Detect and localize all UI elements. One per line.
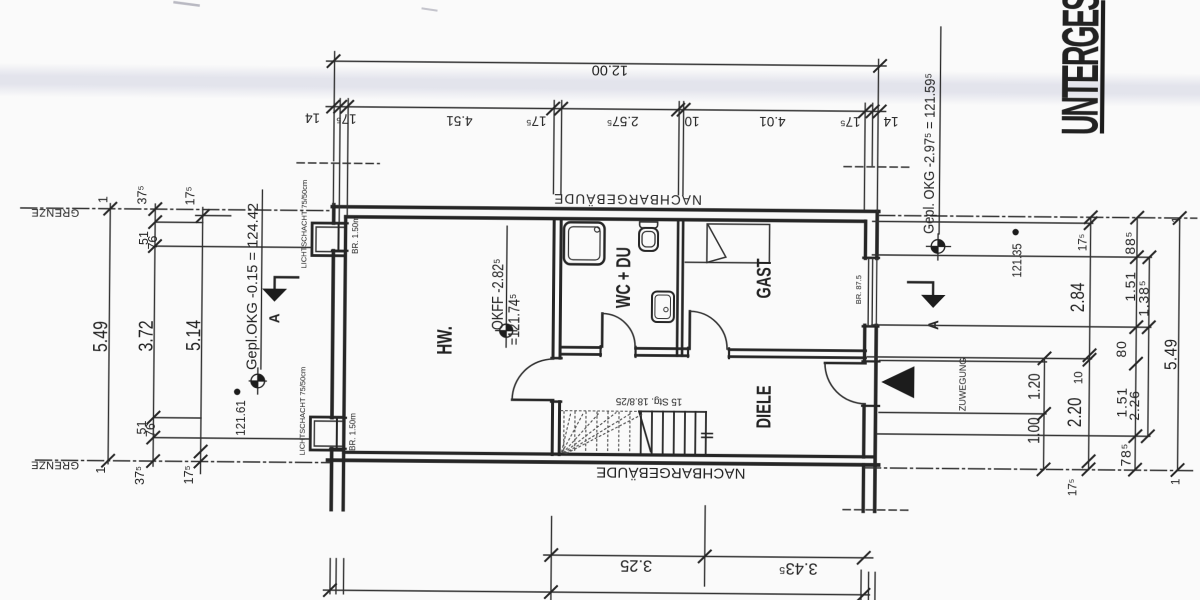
svg-text:1.00: 1.00 (1025, 417, 1044, 444)
svg-text:76: 76 (144, 423, 158, 437)
svg-text:A: A (267, 313, 284, 323)
svg-text:1: 1 (1170, 479, 1182, 486)
svg-text:HW.: HW. (432, 326, 456, 355)
svg-text:BR. 1.50m: BR. 1.50m (351, 216, 360, 254)
svg-text:NACHBARGEBÄUDE: NACHBARGEBÄUDE (596, 463, 746, 481)
svg-text:1.38⁵: 1.38⁵ (1135, 280, 1151, 317)
svg-text:17⁵: 17⁵ (336, 111, 357, 126)
svg-text:GAST: GAST (752, 258, 775, 298)
svg-text:Gepl.OKG -0.15 = 124.42: Gepl.OKG -0.15 = 124.42 (244, 203, 262, 370)
svg-text:2.20: 2.20 (1063, 397, 1085, 427)
svg-text:5.49: 5.49 (1160, 338, 1181, 370)
svg-text:1: 1 (96, 196, 110, 203)
svg-text:WC + DU: WC + DU (612, 247, 635, 308)
svg-text:2.57⁵: 2.57⁵ (607, 114, 639, 129)
svg-text:3.72: 3.72 (135, 320, 157, 351)
svg-text:14: 14 (883, 114, 899, 129)
svg-text:17⁵: 17⁵ (182, 465, 196, 484)
svg-text:78⁵: 78⁵ (1118, 443, 1134, 467)
svg-text:2.26: 2.26 (1126, 390, 1142, 421)
svg-text:4.01: 4.01 (759, 114, 785, 129)
svg-text:15 Stg. 18.8/25: 15 Stg. 18.8/25 (615, 395, 682, 407)
svg-text:1: 1 (94, 467, 108, 474)
svg-text:LICHTSCHACHT 75/50cm: LICHTSCHACHT 75/50cm (299, 180, 309, 269)
svg-text:121.35: 121.35 (1009, 243, 1024, 278)
svg-text:DIELE: DIELE (752, 385, 775, 428)
svg-text:NACHBARGEBÄUDE: NACHBARGEBÄUDE (553, 191, 702, 207)
svg-text:4.51: 4.51 (446, 113, 472, 128)
svg-text:37⁵: 37⁵ (135, 185, 149, 204)
svg-text:GRENZE: GRENZE (31, 206, 79, 218)
svg-text:10: 10 (1073, 371, 1085, 384)
svg-text:5.49: 5.49 (89, 321, 111, 352)
svg-text:=121.74⁵: =121.74⁵ (506, 294, 524, 346)
svg-text:17⁵: 17⁵ (1077, 233, 1089, 251)
svg-text:121.61: 121.61 (233, 400, 248, 436)
svg-text:BR. 87.5: BR. 87.5 (854, 275, 863, 304)
svg-text:OKFF -2.82⁵: OKFF -2.82⁵ (490, 258, 508, 330)
svg-text:17⁵: 17⁵ (526, 113, 547, 128)
svg-text:10: 10 (684, 114, 699, 129)
svg-text:GRENZE: GRENZE (31, 459, 79, 471)
svg-text:76: 76 (146, 236, 160, 250)
svg-text:80: 80 (1113, 340, 1129, 357)
svg-text:ZUWEGUNG: ZUWEGUNG (958, 358, 968, 412)
svg-text:5.14: 5.14 (182, 320, 204, 351)
svg-text:3.25: 3.25 (620, 556, 652, 574)
svg-text:17⁵: 17⁵ (183, 186, 197, 205)
svg-text:2.84: 2.84 (1066, 282, 1088, 312)
svg-text:17⁵: 17⁵ (1067, 478, 1079, 496)
svg-text:17⁵: 17⁵ (840, 114, 861, 129)
svg-text:BR. 1.50m: BR. 1.50m (348, 413, 357, 451)
svg-text:12.00: 12.00 (592, 61, 628, 77)
svg-text:88⁵: 88⁵ (1122, 231, 1138, 255)
svg-text:Gepl. OKG -2.97⁵ = 121.59⁵: Gepl. OKG -2.97⁵ = 121.59⁵ (920, 73, 939, 234)
svg-text:1: 1 (1171, 217, 1183, 224)
svg-text:14: 14 (305, 110, 321, 125)
svg-text:3.43⁵: 3.43⁵ (779, 559, 818, 577)
svg-text:37⁵: 37⁵ (133, 466, 147, 485)
svg-text:LICHTSCHACHT 75/50cm: LICHTSCHACHT 75/50cm (298, 367, 308, 456)
svg-text:1.20: 1.20 (1025, 373, 1044, 400)
